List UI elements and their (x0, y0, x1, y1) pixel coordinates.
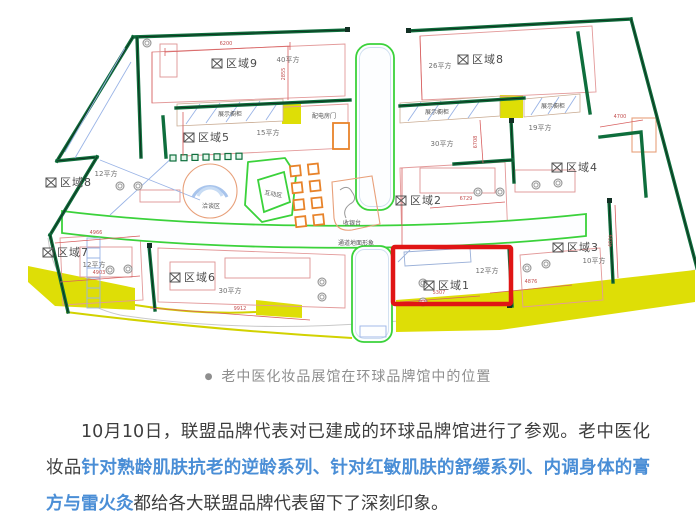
zone-labels: 区域9 40平方 区域8 26平方 区域5 15平方 区域4 19平方 (43, 53, 605, 295)
talk-area: 洽谈区 (183, 164, 237, 218)
zone-label-2: 区域2 (396, 194, 442, 207)
svg-text:2855: 2855 (281, 68, 287, 81)
interactive-area-label: 互动区 (264, 190, 283, 200)
yellow-marker-left (282, 102, 301, 124)
chairs (290, 163, 324, 227)
cabinet-left-label: 展示橱柜 (218, 110, 242, 118)
svg-text:区域6: 区域6 (184, 271, 216, 284)
cabinet-right-label: 展示橱柜 (541, 102, 565, 110)
floor-plan-figure: 展示橱柜 展示橱柜 展示橱柜 (0, 0, 696, 358)
svg-text:30平方: 30平方 (431, 139, 454, 148)
svg-text:区域5: 区域5 (198, 131, 230, 144)
svg-text:9912: 9912 (234, 306, 247, 312)
svg-text:区域7: 区域7 (57, 246, 89, 259)
dimension-lines: 6200 4700 6729 4966 4903 9912 5307 4876 … (55, 36, 643, 320)
cashier-label: 收银台 (343, 219, 361, 227)
talk-area-label: 洽谈区 (202, 202, 220, 210)
svg-text:6708: 6708 (473, 136, 479, 149)
svg-text:15平方: 15平方 (257, 128, 280, 137)
orange-booth (333, 123, 349, 149)
corridor-vertical-top (356, 44, 394, 210)
svg-text:4039: 4039 (607, 234, 614, 247)
svg-text:区域1: 区域1 (438, 279, 470, 292)
svg-text:10平方: 10平方 (583, 256, 606, 265)
svg-text:4966: 4966 (90, 230, 103, 236)
zone-label-5: 区域5 (184, 131, 230, 144)
svg-text:区域2: 区域2 (410, 194, 442, 207)
power-door-label: 配电房门 (312, 112, 336, 120)
svg-text:区域3: 区域3 (567, 241, 599, 254)
svg-text:40平方: 40平方 (277, 55, 300, 64)
interactive-area: 互动区 (245, 158, 296, 222)
zone-label-8-top: 区域8 (458, 53, 504, 66)
corridor-note-label: 通道地面形象 (338, 239, 374, 247)
svg-text:6200: 6200 (220, 41, 233, 47)
columns (106, 39, 562, 306)
svg-text:12平方: 12平方 (95, 169, 118, 178)
zone-label-6: 区域6 (170, 271, 216, 284)
floor-plan-svg: 展示橱柜 展示橱柜 展示橱柜 (0, 0, 696, 358)
article-body: 10月10日，联盟品牌代表对已建成的环球品牌馆进行了参观。老中医化妆品针对熟龄肌… (46, 414, 650, 522)
svg-text:区域4: 区域4 (566, 161, 598, 174)
zone-label-8-left: 区域8 (46, 176, 92, 189)
zone-label-9: 区域9 (212, 57, 258, 70)
zone-label-4: 区域4 (552, 161, 598, 174)
svg-text:6729: 6729 (460, 196, 473, 202)
svg-text:区域8: 区域8 (472, 53, 504, 66)
caption-text: 老中医化妆品展馆在环球品牌馆中的位置 (221, 369, 491, 385)
cabinet-mid-label: 展示橱柜 (425, 108, 449, 116)
article-paragraph: 10月10日，联盟品牌代表对已建成的环球品牌馆进行了参观。老中医化妆品针对熟龄肌… (46, 414, 650, 522)
svg-text:12平方: 12平方 (476, 266, 499, 275)
figure-caption: ●老中医化妆品展馆在环球品牌馆中的位置 (0, 366, 696, 386)
svg-text:4700: 4700 (614, 114, 627, 120)
caption-bullet-icon: ● (205, 372, 214, 382)
svg-text:26平方: 26平方 (429, 61, 452, 70)
svg-text:19平方: 19平方 (529, 123, 552, 132)
svg-text:4876: 4876 (525, 279, 538, 285)
svg-text:区域8: 区域8 (60, 176, 92, 189)
svg-text:区域9: 区域9 (226, 57, 258, 70)
zone-label-3: 区域3 (553, 241, 599, 254)
svg-text:4903: 4903 (93, 270, 106, 276)
display-cubes (170, 153, 242, 161)
svg-text:12平方: 12平方 (83, 260, 106, 269)
svg-text:30平方: 30平方 (219, 286, 242, 295)
zone-outlines (60, 26, 603, 308)
zone-label-7: 区域7 (43, 246, 89, 259)
article-page: 展示橱柜 展示橱柜 展示橱柜 (0, 0, 696, 529)
article-text-2: 都给各大联盟品牌代表留下了深刻印象。 (134, 494, 449, 514)
zone-label-1: 区域1 (424, 279, 470, 292)
